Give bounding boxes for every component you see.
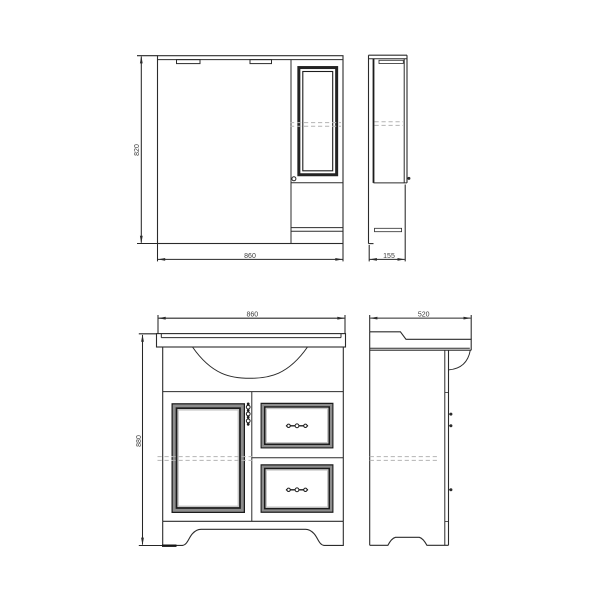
svg-text:860: 860 (246, 312, 258, 319)
svg-text:155: 155 (383, 253, 395, 260)
svg-text:880: 880 (136, 435, 143, 447)
svg-text:820: 820 (134, 144, 141, 156)
svg-text:860: 860 (244, 253, 256, 260)
svg-text:520: 520 (418, 312, 430, 319)
